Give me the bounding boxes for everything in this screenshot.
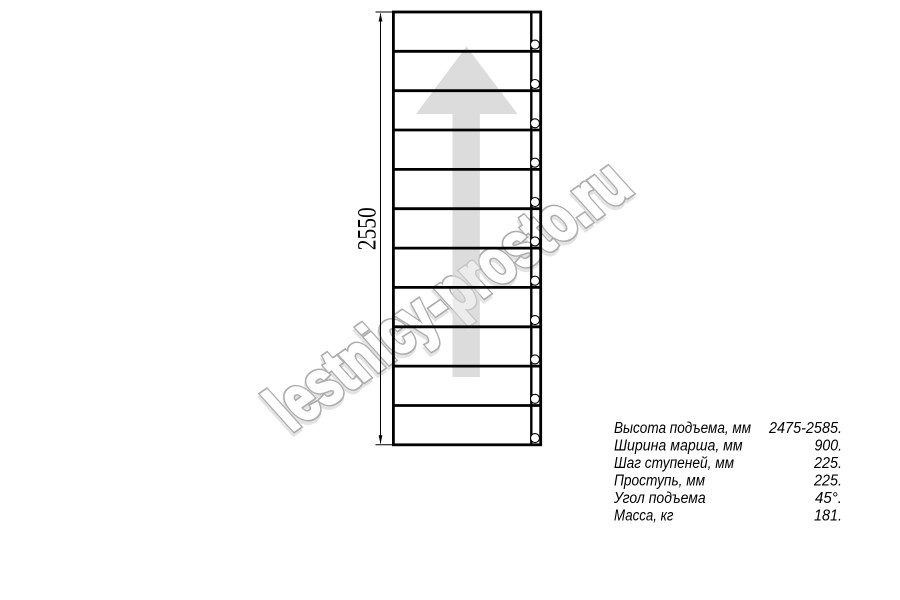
svg-text:225.: 225. [813,455,842,472]
svg-text:Угол подъема: Угол подъема [613,490,706,507]
svg-text:Масса, кг: Масса, кг [614,508,674,525]
svg-text:2475-2585.: 2475-2585. [768,420,842,437]
svg-text:45°.: 45°. [815,490,842,507]
svg-text:181.: 181. [814,508,842,525]
svg-text:Ширина марша, мм: Ширина марша, мм [614,438,743,455]
svg-text:225.: 225. [813,473,842,490]
svg-text:Проступь, мм: Проступь, мм [614,473,705,490]
svg-text:Высота подъема, мм: Высота подъема, мм [614,420,751,437]
svg-text:2550: 2550 [353,207,382,250]
svg-text:900.: 900. [815,438,843,455]
svg-text:Шаг ступеней, мм: Шаг ступеней, мм [614,455,734,472]
